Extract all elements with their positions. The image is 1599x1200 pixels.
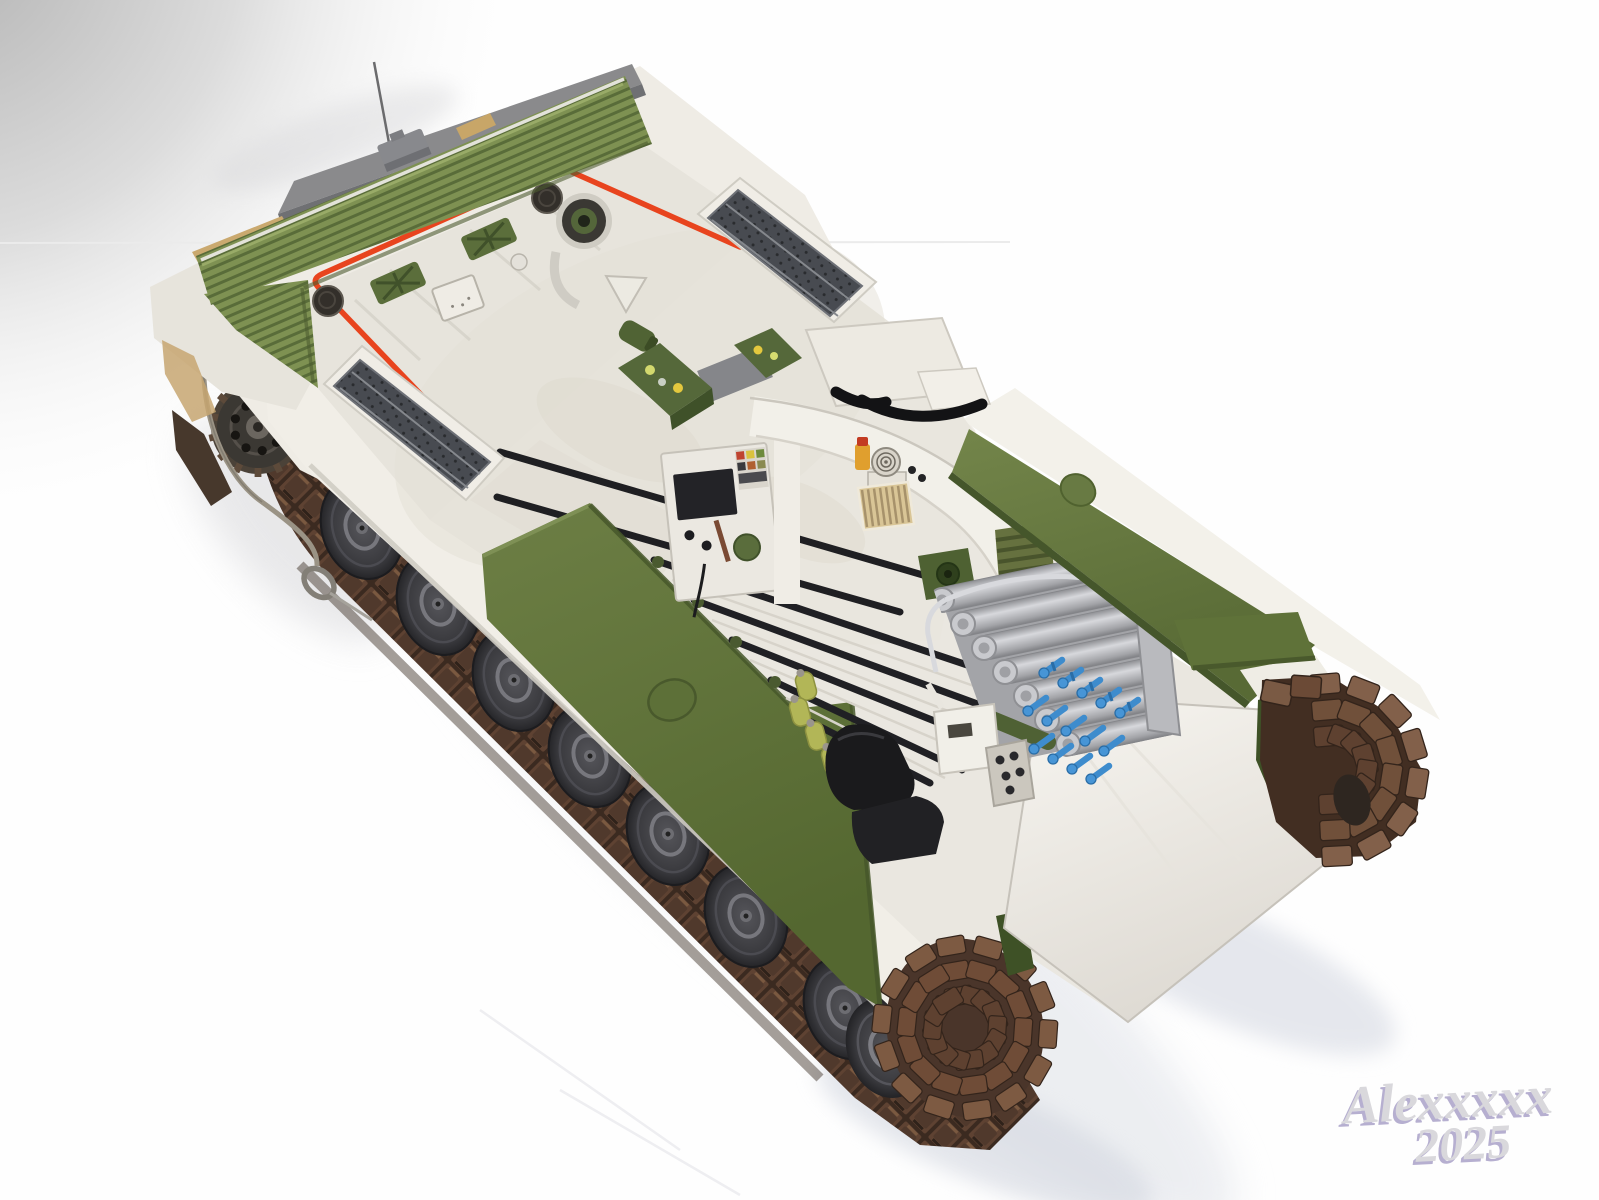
svg-text:2025: 2025 (1413, 1115, 1513, 1173)
